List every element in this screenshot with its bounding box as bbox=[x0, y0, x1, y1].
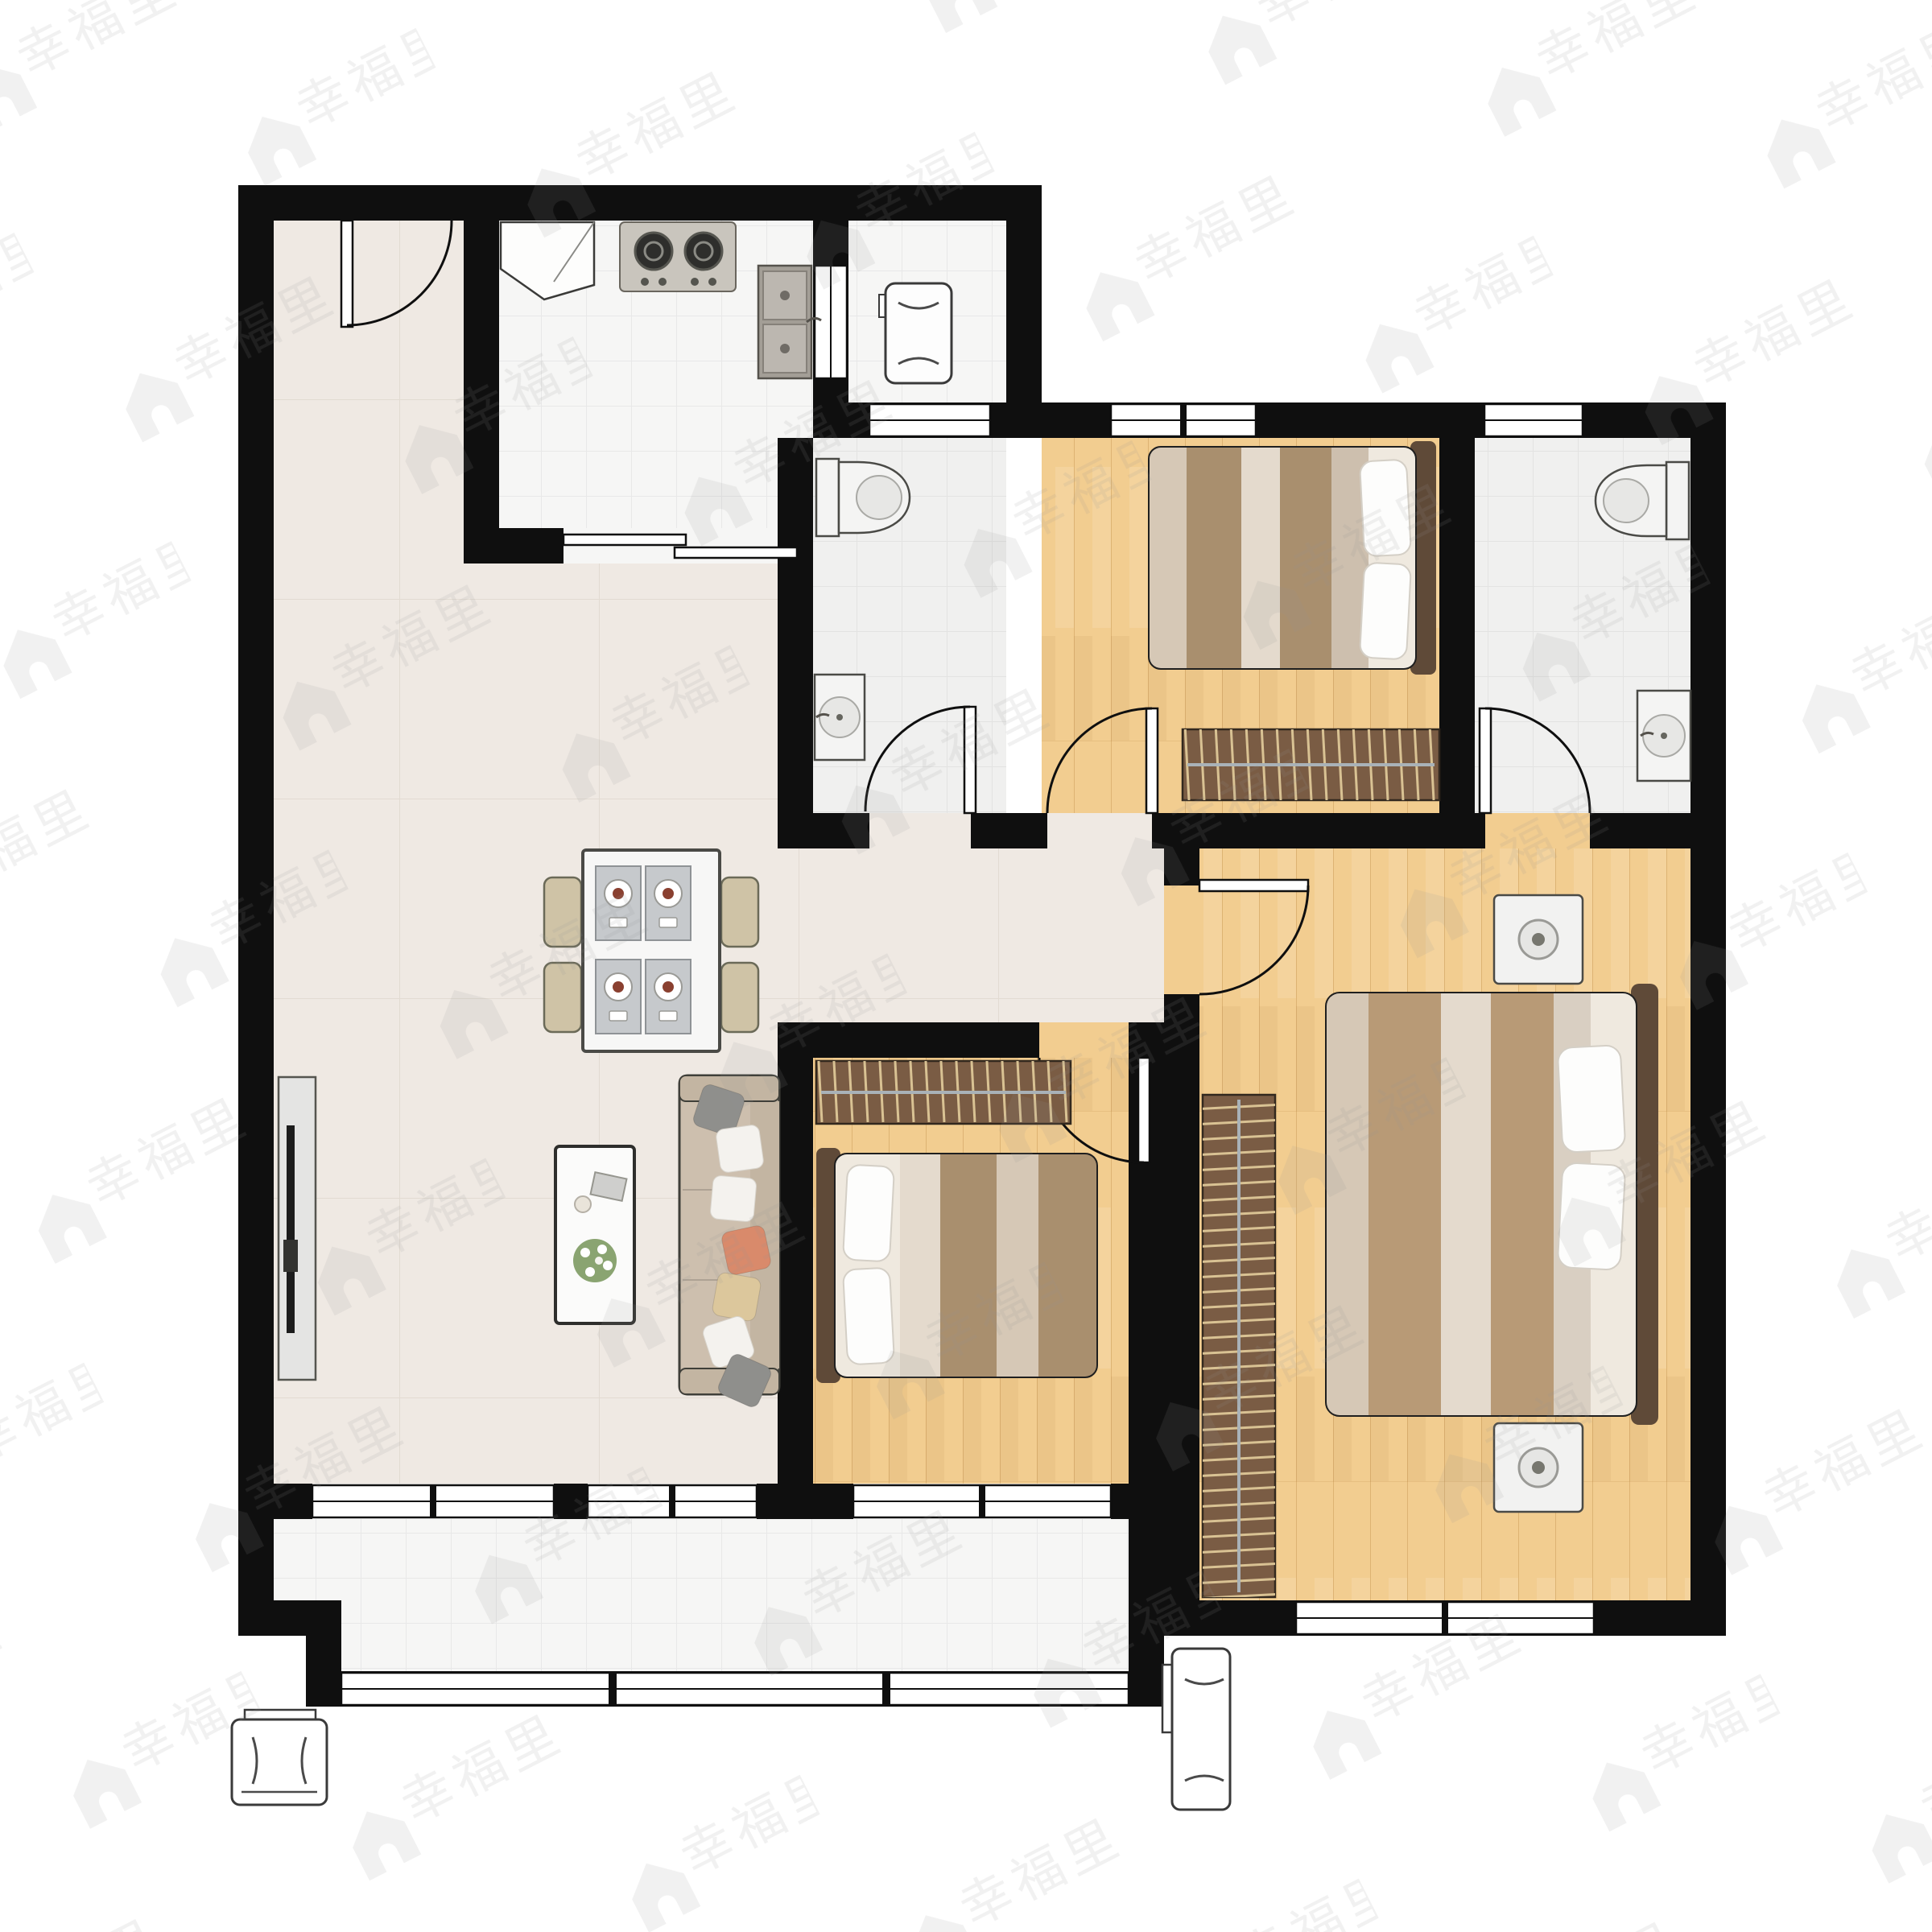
window-living-1 bbox=[312, 1485, 554, 1517]
dining-chair bbox=[544, 963, 581, 1032]
window-master bbox=[1296, 1602, 1594, 1634]
washing-machine bbox=[879, 283, 952, 383]
bedroom-middle-threshold bbox=[1039, 1022, 1144, 1058]
kitchen-sink bbox=[758, 266, 821, 378]
basin-right bbox=[1637, 691, 1690, 781]
basin-top bbox=[815, 675, 865, 760]
nightstand-bottom bbox=[1494, 1423, 1583, 1512]
place-setting bbox=[596, 866, 641, 940]
dining-chair bbox=[544, 877, 581, 947]
wardrobe-master bbox=[1203, 1095, 1275, 1597]
bed-bedroom-top bbox=[1150, 441, 1436, 675]
bath-right-threshold bbox=[1485, 813, 1590, 848]
window-bathroom-right bbox=[1484, 404, 1583, 436]
window-balcony-band bbox=[341, 1673, 1129, 1705]
tv-panel bbox=[279, 1077, 316, 1380]
place-setting bbox=[596, 960, 641, 1034]
bedroom-top-threshold bbox=[1047, 813, 1152, 848]
wardrobe-bedroom-middle bbox=[816, 1061, 1071, 1124]
window-bedroom-top bbox=[1111, 404, 1256, 436]
coaster bbox=[575, 1196, 591, 1212]
sofa bbox=[679, 1075, 779, 1410]
room-hallway bbox=[778, 848, 1164, 1022]
wardrobe-bedroom-top bbox=[1183, 729, 1439, 800]
room-balcony bbox=[274, 1519, 1129, 1671]
sofa-pillow bbox=[720, 1224, 772, 1276]
dining-chair bbox=[721, 877, 758, 947]
bath-top-threshold bbox=[869, 813, 971, 848]
place-setting bbox=[646, 866, 691, 940]
coffee-table bbox=[555, 1146, 634, 1323]
window-bedroom-middle bbox=[853, 1485, 1111, 1517]
window-laundry bbox=[869, 404, 990, 436]
sofa-pillow bbox=[716, 1125, 765, 1174]
bed-bedroom-middle bbox=[816, 1148, 1096, 1383]
place-setting bbox=[646, 960, 691, 1034]
master-threshold bbox=[1164, 885, 1199, 994]
sofa-pillow bbox=[712, 1272, 762, 1323]
nightstand-top bbox=[1494, 895, 1583, 984]
dining-chair bbox=[721, 963, 758, 1032]
bed-master bbox=[1327, 984, 1658, 1425]
window-kitchen-pass bbox=[815, 266, 847, 378]
sofa-pillow bbox=[710, 1175, 758, 1223]
flower-vase bbox=[573, 1239, 617, 1282]
gas-stove bbox=[620, 222, 736, 291]
floor-plan: 幸福里 幸福里 bbox=[0, 0, 1932, 1932]
ac-unit-left bbox=[232, 1710, 327, 1805]
ac-unit-right bbox=[1162, 1649, 1230, 1810]
window-living-2 bbox=[588, 1485, 757, 1517]
